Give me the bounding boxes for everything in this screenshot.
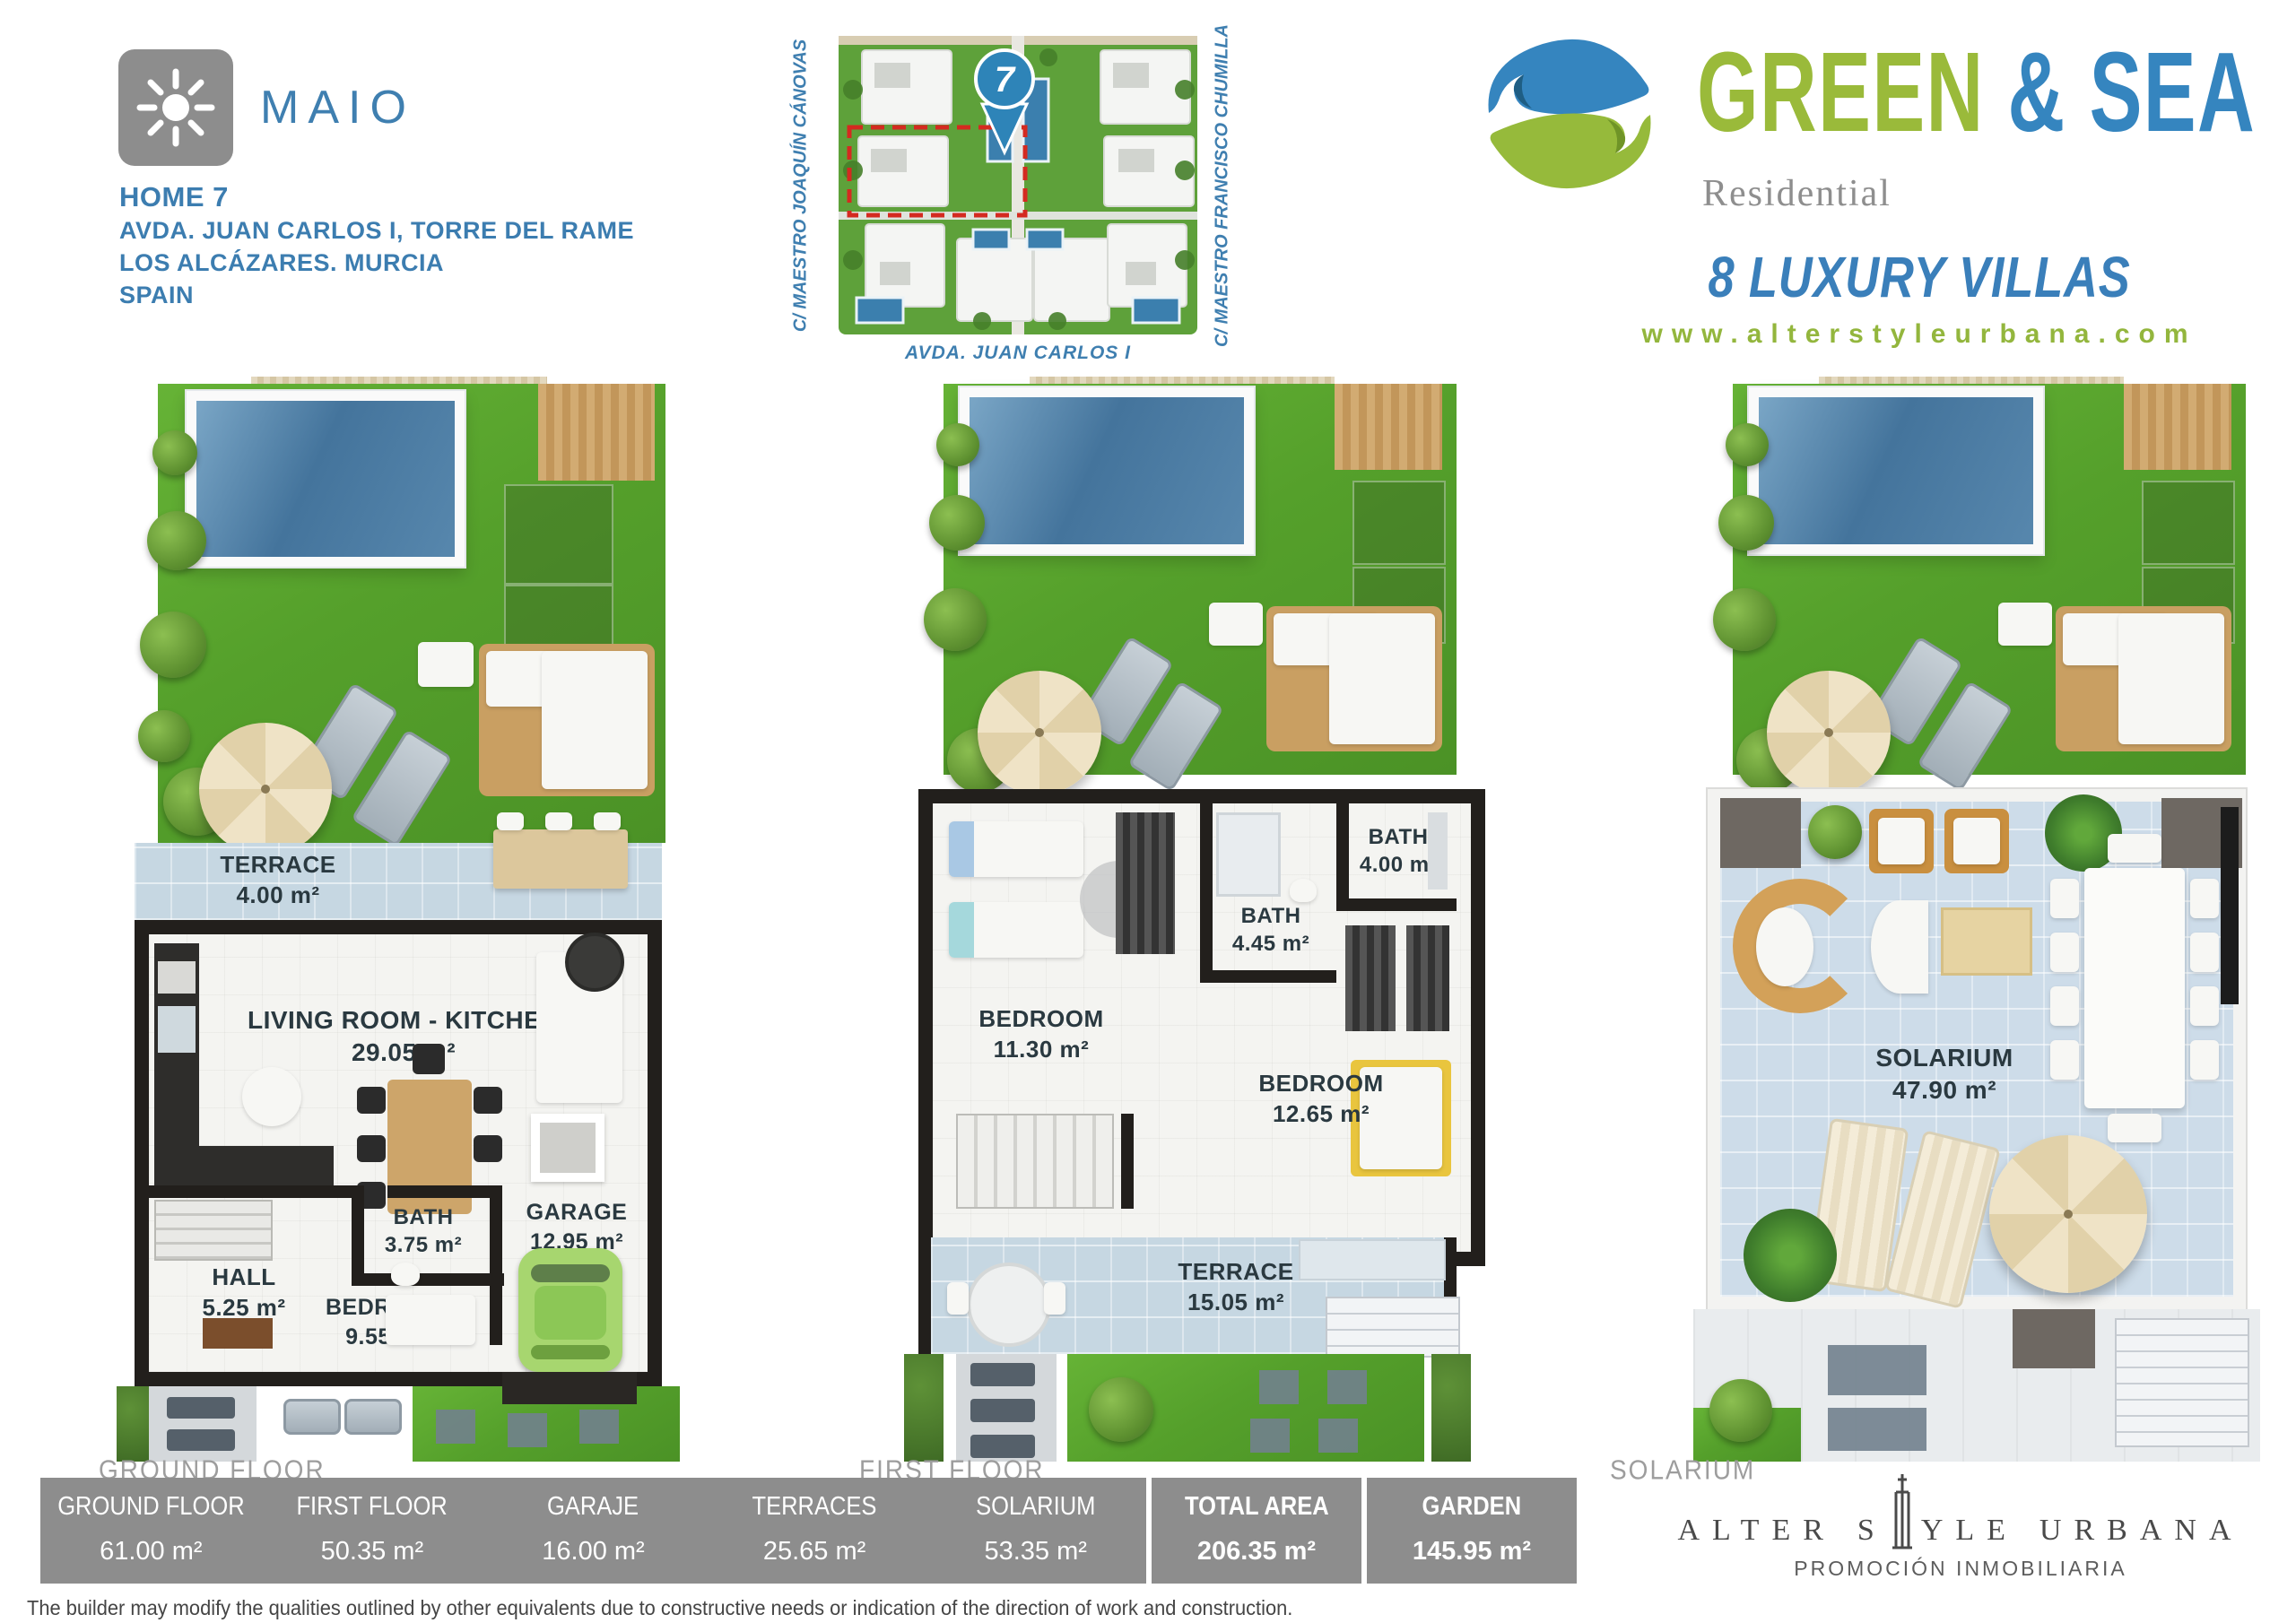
door-mat bbox=[203, 1318, 273, 1349]
table-col-garden: GARDEN 145.95 m² bbox=[1367, 1478, 1577, 1584]
chair bbox=[2190, 1040, 2219, 1080]
paver bbox=[508, 1413, 547, 1447]
chair bbox=[2190, 986, 2219, 1026]
bush bbox=[936, 423, 979, 466]
chair bbox=[2050, 933, 2079, 972]
kitchen-sink bbox=[158, 1006, 196, 1053]
planter-box bbox=[2013, 1309, 2095, 1368]
hedge bbox=[904, 1354, 944, 1462]
parasol-pole bbox=[261, 785, 270, 794]
wall bbox=[1121, 1114, 1134, 1209]
kitchen-appliance bbox=[158, 961, 196, 994]
stepping-stone bbox=[167, 1397, 235, 1419]
street-label-bottom: AVDA. JUAN CARLOS I bbox=[839, 343, 1197, 364]
chair bbox=[357, 1135, 386, 1162]
bush bbox=[1709, 1379, 1772, 1442]
col-header: GARAJE bbox=[547, 1492, 639, 1522]
kitchen-island bbox=[154, 1146, 334, 1187]
staircase bbox=[956, 1114, 1114, 1209]
parasol-pole bbox=[1824, 728, 1833, 737]
chair bbox=[2050, 879, 2079, 918]
palm-plant bbox=[1744, 1209, 1837, 1302]
bedroom-right-label: BEDROOM12.65 m² bbox=[1227, 1069, 1415, 1130]
terrace-label: TERRACE4.00 m² bbox=[170, 850, 386, 911]
pillow bbox=[949, 821, 974, 877]
wall bbox=[918, 1237, 931, 1354]
grass-patch bbox=[504, 484, 613, 585]
table-col-solarium: SOLARIUM 53.35 m² bbox=[925, 1478, 1146, 1584]
wall bbox=[1200, 970, 1336, 983]
bush bbox=[140, 612, 206, 678]
chair bbox=[594, 812, 621, 830]
armchair-cushion bbox=[1953, 818, 2000, 864]
street-label-left: C/ MAESTRO JOAQUÍN CÁNOVAS bbox=[787, 36, 814, 334]
armchair bbox=[1869, 809, 1934, 873]
stepping-stone bbox=[970, 1363, 1035, 1386]
paver bbox=[1828, 1408, 1926, 1451]
living-room-label: LIVING ROOM - KITCHEN29.05 m² bbox=[233, 1004, 574, 1070]
solarium-label: SOLARIUM47.90 m² bbox=[1819, 1042, 2070, 1107]
grass-patch bbox=[1352, 481, 1446, 565]
garage-apron bbox=[502, 1372, 637, 1404]
paver bbox=[1259, 1370, 1299, 1404]
sofa-cushions bbox=[2118, 613, 2224, 744]
brochure-page: MAIO HOME 7 AVDA. JUAN CARLOS I, TORRE D… bbox=[0, 0, 2296, 1623]
ground-floor-plan: TERRACE4.00 m² LIVING ROOM - KITCHEN29.0… bbox=[117, 377, 680, 1462]
built-in-bench bbox=[1299, 1239, 1446, 1280]
bush bbox=[1718, 495, 1774, 551]
col-value: 53.35 m² bbox=[925, 1537, 1146, 1567]
bed bbox=[386, 1295, 475, 1345]
website-link[interactable]: www.alterstyleurbana.com bbox=[1623, 319, 2215, 350]
car bbox=[518, 1248, 622, 1372]
chair bbox=[1044, 1282, 1065, 1315]
chair bbox=[947, 1282, 969, 1315]
wardrobe bbox=[1116, 812, 1175, 954]
green-sea-leaf-icon bbox=[1480, 32, 1659, 195]
green-sea-wordmark: GREEN & SEA bbox=[1697, 36, 2256, 149]
address-line-1: AVDA. JUAN CARLOS I, TORRE DEL RAME bbox=[119, 217, 634, 245]
tower-icon bbox=[1889, 1472, 1916, 1549]
paver bbox=[579, 1410, 619, 1444]
publisher-logo: ALTER S YLE URBANA PROMOCIÓ bbox=[1620, 1472, 2296, 1581]
parasol-pole bbox=[1035, 728, 1044, 737]
rug bbox=[531, 1114, 604, 1182]
parasol bbox=[978, 671, 1101, 794]
sun-icon bbox=[135, 66, 217, 149]
garden-table bbox=[1209, 603, 1263, 646]
toilet bbox=[391, 1263, 420, 1286]
paver bbox=[436, 1410, 475, 1444]
hedge bbox=[117, 1386, 149, 1462]
area-table: GROUND FLOOR 61.00 m² FIRST FLOOR 50.35 … bbox=[40, 1478, 1146, 1584]
parasol bbox=[199, 723, 332, 855]
plant bbox=[1808, 805, 1862, 859]
bush bbox=[1089, 1377, 1153, 1442]
chair bbox=[474, 1135, 502, 1162]
bush bbox=[924, 588, 987, 651]
car-roof bbox=[535, 1286, 606, 1340]
patio-lounger bbox=[283, 1399, 341, 1435]
paver bbox=[1250, 1419, 1290, 1453]
planter-box bbox=[1720, 798, 1801, 868]
chair bbox=[2108, 834, 2161, 863]
coffee-table bbox=[565, 933, 624, 992]
paver bbox=[1828, 1345, 1926, 1395]
street-label-right: C/ MAESTRO FRANCISCO CHUMILLA bbox=[1209, 36, 1236, 334]
tagline: 8 LUXURY VILLAS bbox=[1706, 244, 2133, 310]
parasol-pole bbox=[2064, 1210, 2073, 1219]
table-col-ground-floor: GROUND FLOOR 61.00 m² bbox=[40, 1478, 262, 1584]
wall bbox=[352, 1185, 364, 1286]
patio-lounger bbox=[344, 1399, 402, 1435]
chair bbox=[545, 812, 572, 830]
paver bbox=[1327, 1370, 1367, 1404]
col-header: GROUND FLOOR bbox=[57, 1492, 244, 1522]
pool bbox=[187, 391, 465, 567]
site-plan-map: 7 bbox=[839, 36, 1197, 334]
stepping-stone bbox=[970, 1399, 1035, 1422]
first-floor-plan: BEDROOM11.30 m² BATH4.45 m² BATH4.00 m² … bbox=[904, 377, 1471, 1462]
staircase bbox=[154, 1200, 273, 1261]
parasol bbox=[1767, 671, 1891, 794]
disclaimer-text: The builder may modify the qualities out… bbox=[27, 1596, 1305, 1620]
bush bbox=[147, 511, 206, 570]
exterior-stairs bbox=[2115, 1318, 2249, 1447]
pool bbox=[960, 387, 1254, 554]
table-col-terraces: TERRACES 25.65 m² bbox=[704, 1478, 926, 1584]
chair bbox=[2050, 986, 2079, 1026]
rug-inner bbox=[540, 1123, 596, 1173]
home-type-badge bbox=[118, 49, 233, 166]
svg-text:7: 7 bbox=[995, 60, 1016, 100]
publisher-word: S bbox=[1857, 1514, 1887, 1548]
wall bbox=[352, 1273, 504, 1286]
garden-table bbox=[418, 642, 474, 687]
address-line-2: LOS ALCÁZARES. MURCIA bbox=[119, 249, 444, 277]
publisher-word: ALTER bbox=[1677, 1514, 1835, 1548]
hedge bbox=[1431, 1354, 1471, 1462]
wardrobe bbox=[1406, 925, 1449, 1031]
wardrobe bbox=[1345, 925, 1396, 1031]
bush bbox=[138, 710, 190, 762]
grass-patch bbox=[2142, 481, 2235, 565]
exterior-stairs bbox=[1326, 1297, 1460, 1358]
bush bbox=[1726, 423, 1769, 466]
home-number: HOME 7 bbox=[119, 181, 229, 213]
col-value: 16.00 m² bbox=[483, 1537, 704, 1567]
col-header: TOTAL AREA bbox=[1185, 1492, 1329, 1522]
wall bbox=[149, 1185, 357, 1198]
publisher-word: URBANA bbox=[2039, 1514, 2244, 1548]
armchair-cushion bbox=[1878, 818, 1925, 864]
table-col-total-area: TOTAL AREA 206.35 m² bbox=[1152, 1478, 1361, 1584]
col-header: TERRACES bbox=[752, 1492, 877, 1522]
outdoor-dining-table bbox=[493, 829, 628, 889]
table-col-garage: GARAJE 16.00 m² bbox=[483, 1478, 704, 1584]
round-table bbox=[242, 1067, 301, 1126]
paver bbox=[1318, 1419, 1358, 1453]
armchair bbox=[1944, 809, 2009, 873]
col-header: FIRST FLOOR bbox=[297, 1492, 448, 1522]
wall bbox=[387, 1185, 502, 1198]
chair bbox=[357, 1087, 386, 1114]
col-value: 145.95 m² bbox=[1367, 1537, 1577, 1567]
pillow bbox=[949, 902, 974, 958]
dining-table bbox=[2084, 868, 2185, 1108]
wall bbox=[1336, 898, 1457, 911]
publisher-subtitle: PROMOCIÓN INMOBILIARIA bbox=[1620, 1557, 2296, 1581]
logo-subtitle: Residential bbox=[1702, 172, 1892, 215]
col-value: 206.35 m² bbox=[1152, 1537, 1361, 1567]
single-bed bbox=[949, 902, 1083, 958]
car-windshield bbox=[531, 1264, 610, 1282]
stepping-stone bbox=[167, 1429, 235, 1451]
hall-label: HALL5.25 m² bbox=[163, 1263, 325, 1324]
bath-mid-label: BATH4.45 m² bbox=[1205, 902, 1336, 958]
solarium-plan: SOLARIUM47.90 m² bbox=[1693, 377, 2260, 1462]
col-header: GARDEN bbox=[1422, 1492, 1522, 1522]
single-bed bbox=[949, 821, 1083, 877]
bath-counter bbox=[1428, 812, 1448, 890]
wood-side-table bbox=[1941, 907, 2032, 976]
wall-panel bbox=[2221, 807, 2239, 1004]
col-value: 61.00 m² bbox=[40, 1537, 262, 1567]
bath-label: BATH3.75 m² bbox=[364, 1203, 483, 1259]
publisher-wordmark: ALTER S YLE URBANA bbox=[1620, 1472, 2296, 1548]
table-col-first-floor: FIRST FLOOR 50.35 m² bbox=[262, 1478, 483, 1584]
wood-deck bbox=[1335, 384, 1442, 470]
curved-sofa-cushions bbox=[1756, 907, 1813, 986]
chair bbox=[2190, 933, 2219, 972]
car-rear-window bbox=[531, 1345, 610, 1359]
shower bbox=[1216, 812, 1281, 897]
crescent-table bbox=[1871, 900, 1928, 994]
chair bbox=[413, 1044, 445, 1074]
publisher-word: YLE bbox=[1921, 1514, 2018, 1548]
chair bbox=[2190, 879, 2219, 918]
sofa-cushions bbox=[542, 651, 648, 789]
round-table bbox=[967, 1263, 1051, 1347]
chair bbox=[474, 1087, 502, 1114]
bush bbox=[1713, 588, 1776, 651]
wood-deck bbox=[538, 384, 655, 481]
bedroom-left-label: BEDROOM11.30 m² bbox=[947, 1004, 1135, 1065]
bush bbox=[152, 430, 197, 475]
garden-table bbox=[1998, 603, 2052, 646]
wall bbox=[490, 1185, 502, 1345]
chair bbox=[497, 812, 524, 830]
col-value: 25.65 m² bbox=[704, 1537, 926, 1567]
col-header: SOLARIUM bbox=[976, 1492, 1095, 1522]
sofa-cushions bbox=[1329, 613, 1435, 744]
bush bbox=[929, 495, 985, 551]
parasol bbox=[1989, 1135, 2147, 1293]
model-name: MAIO bbox=[260, 81, 415, 135]
col-value: 50.35 m² bbox=[262, 1537, 483, 1567]
address-line-3: SPAIN bbox=[119, 282, 194, 309]
pool bbox=[1749, 387, 2043, 554]
chair bbox=[2108, 1114, 2161, 1142]
toilet bbox=[1290, 879, 1317, 902]
wood-deck bbox=[2124, 384, 2231, 470]
